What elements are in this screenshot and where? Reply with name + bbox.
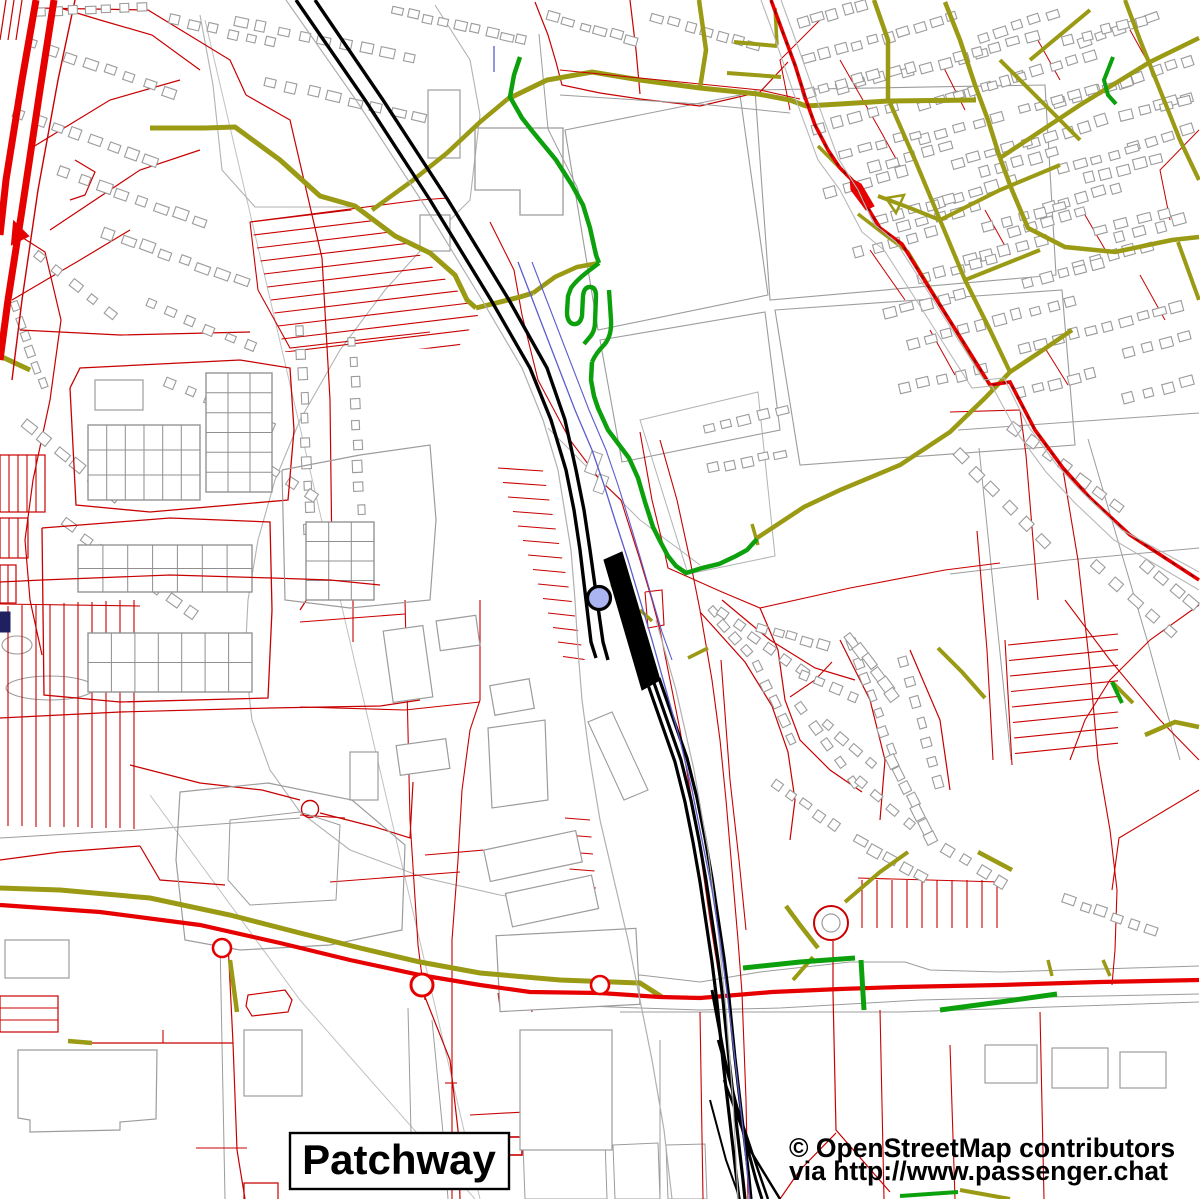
svg-text:Patchway: Patchway (302, 1136, 496, 1183)
svg-text:via http://www.passenger.chat: via http://www.passenger.chat (789, 1156, 1168, 1186)
